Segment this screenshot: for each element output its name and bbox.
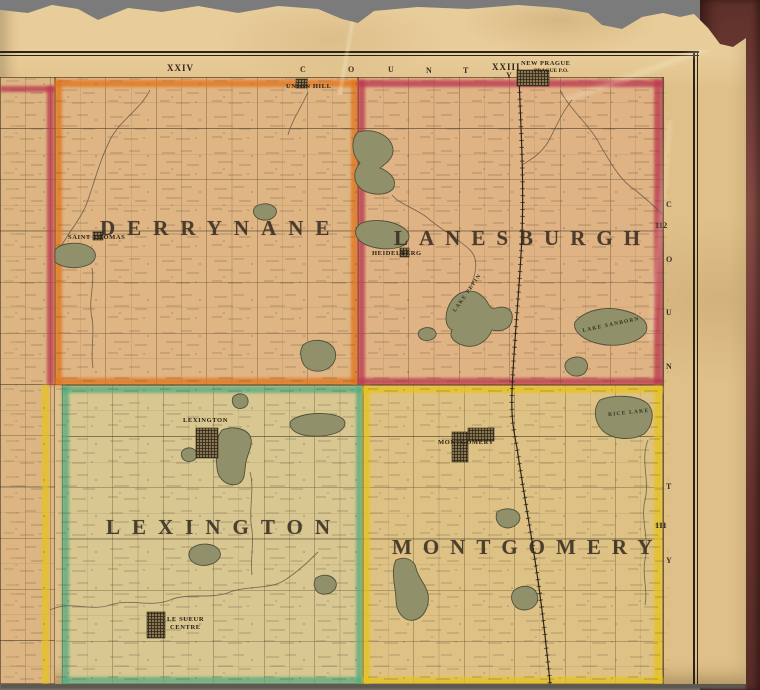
- frame-line-top-inner: [0, 55, 699, 56]
- new-prague-label: NEW PRAGUE: [521, 60, 570, 67]
- county-letter: C: [300, 65, 306, 74]
- lexington-border-top: [62, 386, 363, 393]
- prague-po-label: PRAGUE P.O.: [534, 68, 568, 74]
- village-lexington: LEXINGTON: [183, 417, 228, 424]
- derrynane-border-south: [55, 378, 358, 385]
- lanesburgh-border-top: [358, 80, 663, 87]
- county-letter-right: N: [666, 362, 672, 371]
- frame-line-top-outer: [0, 51, 699, 53]
- village-le-sueur-centre-line1: LE SUEUR: [167, 616, 204, 623]
- township-number-111: 111: [655, 520, 667, 530]
- lexington-border-west: [62, 386, 69, 684]
- map-edge-right: [663, 77, 664, 684]
- county-letter-right: C: [666, 200, 672, 209]
- frame-line-right-outer: [693, 51, 695, 684]
- derrynane-border-east: [351, 80, 358, 385]
- township-number-112: 112: [655, 220, 667, 230]
- village-montgomery: MONTGOMERY: [438, 439, 494, 446]
- county-letter: U: [388, 65, 394, 74]
- scanned-plat-map: XXIV C O U N T XXIII Y NEW PRAGUE PRAGUE…: [0, 0, 760, 690]
- lexington-border-east: [356, 386, 363, 684]
- township-name-lanesburgh: LANESBURGH: [394, 226, 651, 251]
- village-union-hill: UNION HILL: [286, 83, 332, 90]
- lanesburgh-border-south: [358, 378, 663, 385]
- township-name-derrynane: DERRYNANE: [100, 216, 341, 241]
- county-letter: O: [348, 65, 354, 74]
- county-letter-y: Y: [506, 71, 512, 80]
- border-band-red-vertical: [47, 86, 54, 385]
- range-number-xxiv: XXIV: [167, 63, 194, 73]
- border-band-yellow-vertical: [42, 385, 49, 684]
- village-heidelberg: HEIDELBERG: [372, 250, 422, 257]
- lanesburgh-border-west: [358, 80, 365, 385]
- derrynane-border-west: [55, 80, 62, 385]
- village-le-sueur-centre-line2: CENTRE: [170, 624, 201, 631]
- county-letter: N: [426, 66, 432, 75]
- montgomery-border-west: [363, 386, 370, 684]
- township-west-sliver: [0, 77, 55, 684]
- map-sheet: XXIV C O U N T XXIII Y NEW PRAGUE PRAGUE…: [0, 0, 746, 685]
- lexington-border-south: [62, 677, 363, 684]
- county-letter-right: O: [666, 255, 672, 264]
- montgomery-border-south: [363, 677, 663, 684]
- montgomery-border-top: [363, 386, 663, 393]
- village-saint-thomas: SAINT THOMAS: [68, 234, 125, 241]
- county-letter-right: T: [666, 482, 671, 491]
- county-letter-right: Y: [666, 556, 672, 565]
- county-letter-right: U: [666, 308, 672, 317]
- township-name-lexington: LEXINGTON: [106, 515, 342, 540]
- township-name-montgomery: MONTGOMERY: [392, 535, 663, 560]
- frame-line-right-inner: [697, 51, 698, 684]
- lanesburgh-border-east: [654, 80, 662, 385]
- county-letter: T: [463, 66, 468, 75]
